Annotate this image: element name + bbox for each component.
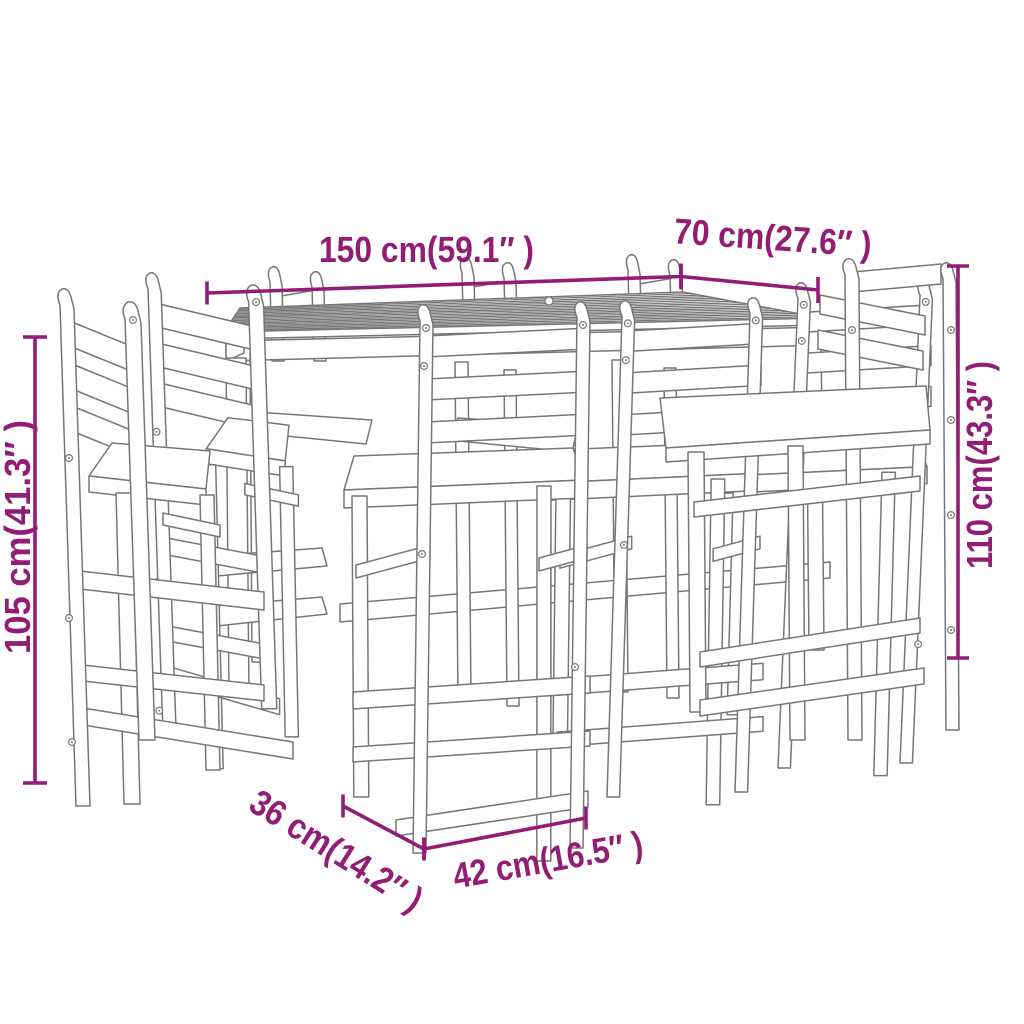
svg-text:150 cm(59.1″ ): 150 cm(59.1″ ) xyxy=(319,229,534,270)
svg-text:110 cm(43.3″ ): 110 cm(43.3″ ) xyxy=(959,361,1000,569)
svg-text:105 cm(41.3″ ): 105 cm(41.3″ ) xyxy=(0,420,38,654)
